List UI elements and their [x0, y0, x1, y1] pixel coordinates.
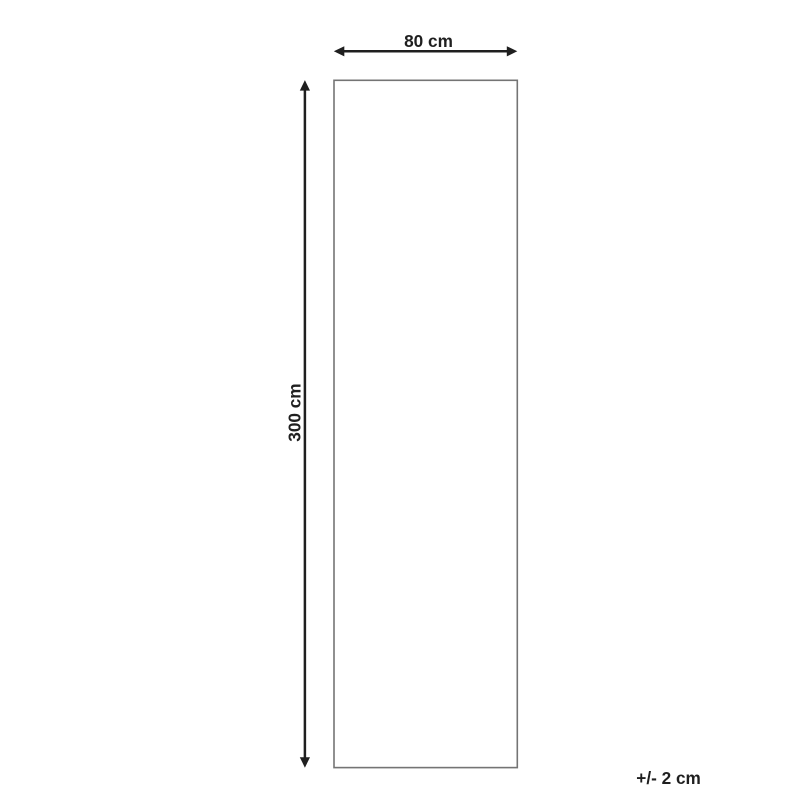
svg-text:300 cm: 300 cm — [285, 383, 305, 441]
svg-text:80 cm: 80 cm — [404, 31, 453, 51]
svg-text:+/- 2 cm: +/- 2 cm — [636, 768, 701, 788]
